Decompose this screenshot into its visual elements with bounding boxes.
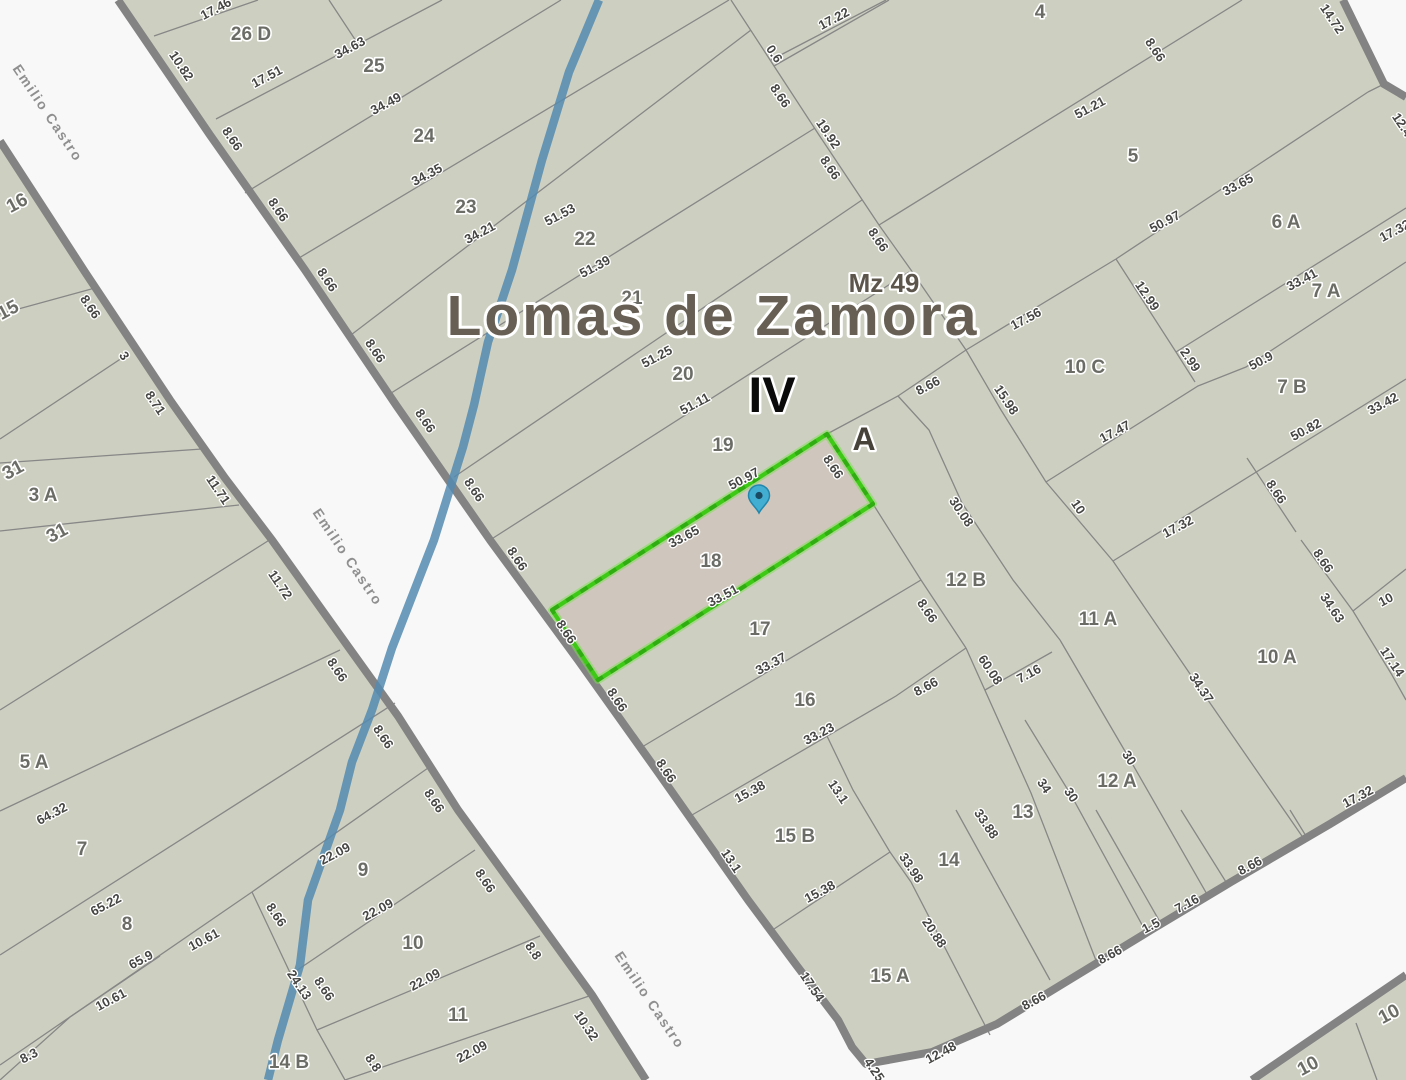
svg-text:5: 5 bbox=[1128, 146, 1139, 167]
svg-text:14 B: 14 B bbox=[269, 1052, 309, 1073]
svg-text:18: 18 bbox=[700, 551, 721, 572]
svg-text:IV: IV bbox=[748, 367, 796, 423]
svg-text:6 A: 6 A bbox=[1272, 212, 1301, 233]
svg-text:12 A: 12 A bbox=[1097, 771, 1137, 792]
svg-text:17: 17 bbox=[749, 619, 770, 640]
svg-text:14: 14 bbox=[938, 850, 960, 871]
svg-text:4: 4 bbox=[1035, 2, 1046, 23]
svg-text:25: 25 bbox=[363, 56, 385, 77]
svg-text:5 A: 5 A bbox=[20, 752, 49, 773]
svg-text:23: 23 bbox=[455, 197, 476, 218]
svg-text:11: 11 bbox=[448, 1005, 469, 1026]
svg-text:7 A: 7 A bbox=[1312, 281, 1341, 302]
svg-text:10 C: 10 C bbox=[1065, 357, 1105, 378]
svg-text:24: 24 bbox=[413, 126, 435, 147]
svg-text:12 B: 12 B bbox=[946, 570, 986, 591]
svg-text:3 A: 3 A bbox=[29, 485, 58, 506]
svg-text:7 B: 7 B bbox=[1277, 377, 1307, 398]
svg-text:8: 8 bbox=[122, 914, 133, 935]
svg-text:Mz 49: Mz 49 bbox=[849, 268, 920, 298]
svg-text:11 A: 11 A bbox=[1079, 609, 1118, 630]
svg-text:7: 7 bbox=[77, 839, 88, 860]
svg-text:20: 20 bbox=[672, 364, 693, 385]
svg-text:15 A: 15 A bbox=[870, 966, 910, 987]
svg-text:9: 9 bbox=[358, 860, 369, 881]
svg-text:15 B: 15 B bbox=[775, 826, 815, 847]
svg-text:26 D: 26 D bbox=[231, 24, 271, 45]
svg-text:22: 22 bbox=[574, 229, 595, 250]
svg-text:19: 19 bbox=[712, 435, 733, 456]
svg-text:13: 13 bbox=[1012, 802, 1033, 823]
svg-text:10: 10 bbox=[402, 933, 423, 954]
svg-text:16: 16 bbox=[794, 690, 815, 711]
svg-text:A: A bbox=[852, 421, 875, 457]
svg-text:10 A: 10 A bbox=[1257, 647, 1297, 668]
